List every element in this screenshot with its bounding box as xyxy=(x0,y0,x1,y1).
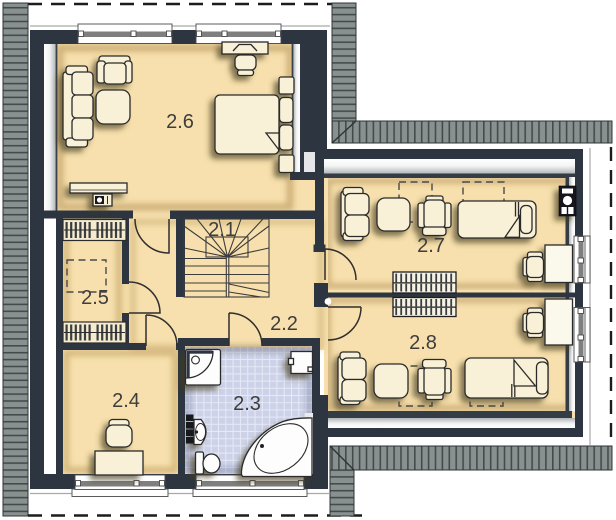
svg-text:2.3: 2.3 xyxy=(233,393,261,415)
svg-text:2.5: 2.5 xyxy=(81,287,109,309)
svg-text:2.6: 2.6 xyxy=(166,111,194,133)
svg-text:2.8: 2.8 xyxy=(409,332,437,354)
svg-text:2.7: 2.7 xyxy=(417,235,445,257)
svg-text:2.1: 2.1 xyxy=(208,219,236,241)
svg-text:2.4: 2.4 xyxy=(112,390,140,412)
svg-text:2.2: 2.2 xyxy=(270,313,298,335)
